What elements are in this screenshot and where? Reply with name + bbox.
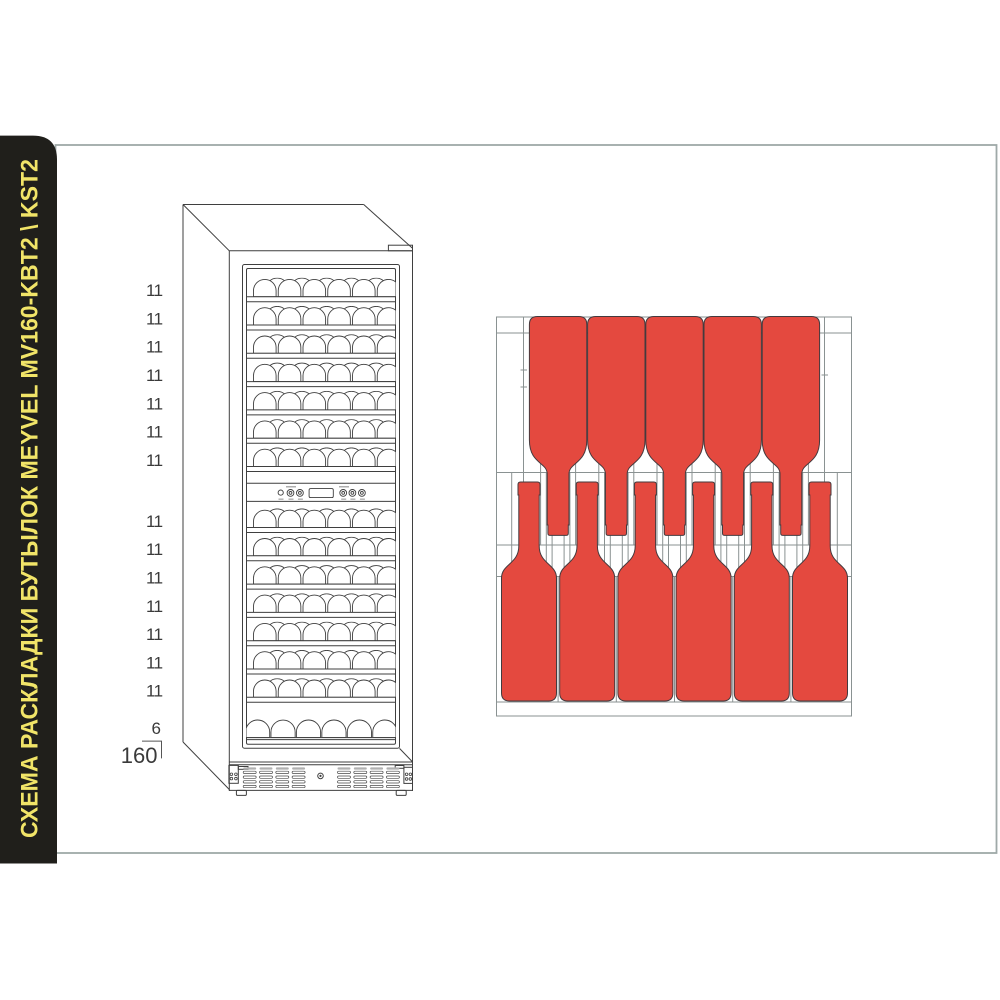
svg-text:160: 160 [121,743,158,768]
svg-text:СХЕМА РАСКЛАДКИ БУТЫЛОК MEYVEL: СХЕМА РАСКЛАДКИ БУТЫЛОК MEYVEL MV160-KBT… [17,159,44,838]
svg-text:11: 11 [146,569,163,588]
svg-text:11: 11 [146,281,163,300]
svg-text:11: 11 [146,366,163,385]
svg-text:11: 11 [146,653,163,672]
svg-text:11: 11 [146,512,163,531]
svg-text:11: 11 [146,338,163,357]
svg-text:11: 11 [146,540,163,559]
svg-text:11: 11 [146,625,163,644]
svg-text:6: 6 [152,719,161,738]
svg-text:11: 11 [146,423,163,442]
svg-text:11: 11 [146,682,163,701]
svg-text:11: 11 [146,597,163,616]
svg-text:11: 11 [146,451,163,470]
svg-text:11: 11 [146,394,163,413]
svg-text:11: 11 [146,309,163,328]
